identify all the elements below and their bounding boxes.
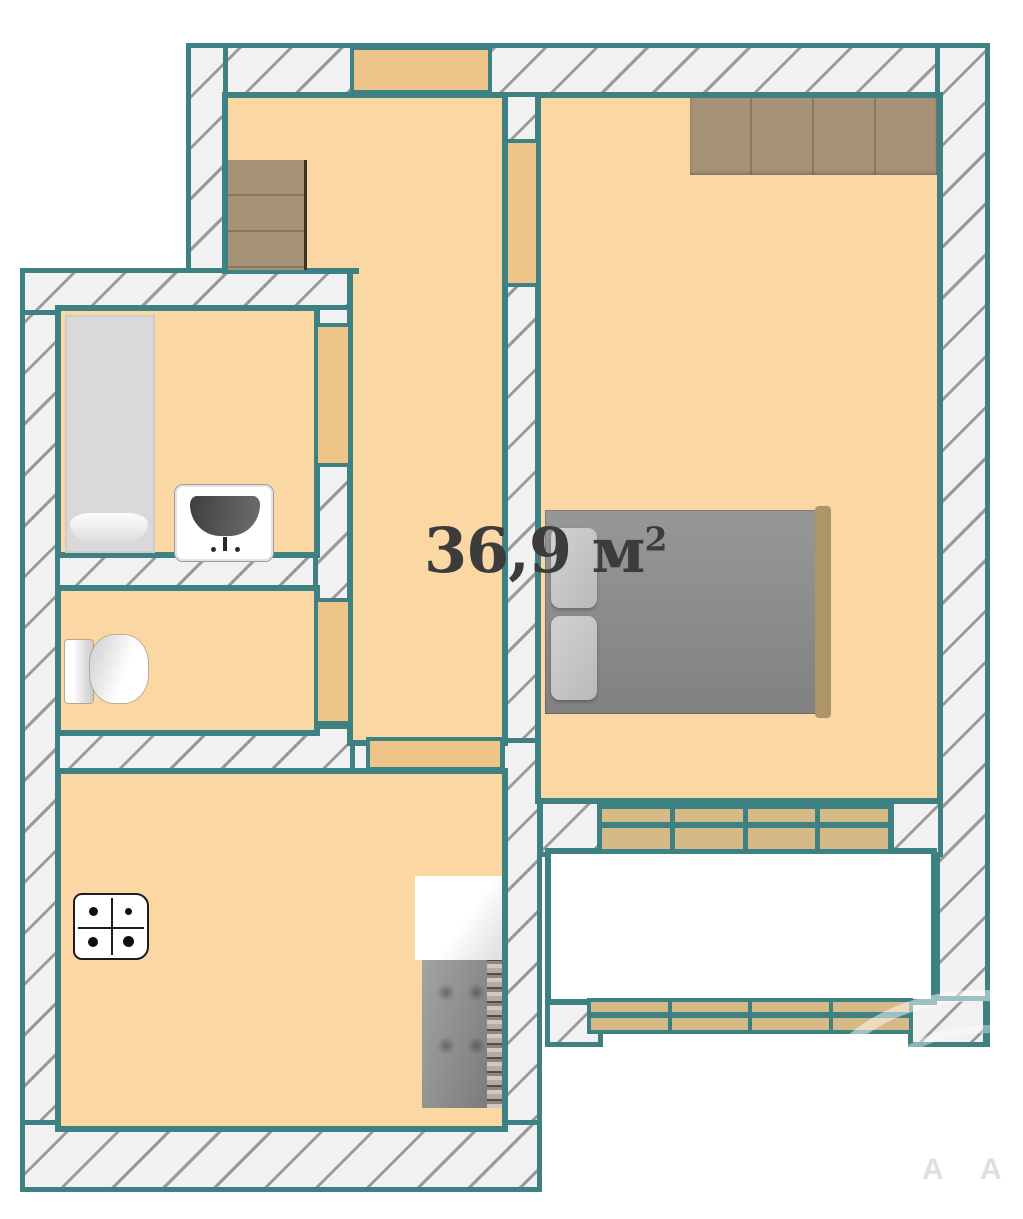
window-pane: [820, 809, 888, 849]
area-unit: м: [592, 514, 645, 587]
stove-burner: [88, 937, 98, 947]
sink-bowl: [190, 496, 260, 536]
exterior-wall-right: [935, 43, 990, 1047]
watermark-letter: A: [980, 1153, 1002, 1187]
window-pane: [591, 1002, 668, 1030]
room-corridor-floor: [353, 98, 502, 740]
window-pane: [752, 1002, 829, 1030]
window-pane: [833, 1002, 910, 1030]
entrance-door-opening: [350, 46, 492, 94]
stove-burner: [89, 907, 98, 916]
bathtub-curve: [70, 513, 148, 543]
area-value: 36,9: [424, 514, 571, 587]
room-balcony: [545, 848, 937, 1005]
area-superscript: 2: [644, 519, 667, 558]
exterior-wall-left-lower: [20, 268, 60, 1192]
bathroom-door-opening: [314, 323, 352, 467]
stove-burner: [123, 936, 134, 947]
exterior-wall-top: [186, 43, 990, 97]
watermark-letter: A: [922, 1153, 944, 1187]
window-pane: [602, 809, 670, 849]
bedroom-wardrobe: [690, 98, 937, 175]
refrigerator: [422, 960, 502, 1108]
bathtub: [65, 315, 155, 553]
balcony-window: [587, 998, 913, 1034]
refrigerator-edge-texture: [487, 960, 502, 1108]
hall-closet: [228, 160, 307, 270]
bedroom-window: [597, 804, 893, 854]
toilet-bowl: [90, 635, 148, 703]
bedroom-door-opening: [504, 139, 540, 287]
stove: [73, 893, 149, 960]
sink-faucet: [223, 537, 227, 551]
kitchen-counter: [415, 876, 502, 960]
window-pane: [672, 1002, 749, 1030]
window-pane: [748, 809, 816, 849]
area-label: 36,9 м2: [424, 514, 667, 587]
bathroom-sink: [175, 485, 273, 561]
bed-pillow: [551, 616, 597, 700]
stove-burner: [125, 908, 132, 915]
floor-plan: 36,9 м2 A A: [0, 0, 1023, 1219]
toilet-door-opening: [314, 598, 352, 725]
window-pane: [675, 809, 743, 849]
kitchen-door-opening: [366, 737, 504, 771]
sink-tap-dot: [235, 547, 240, 552]
sink-tap-dot: [211, 547, 216, 552]
bed-footboard: [815, 506, 831, 718]
toilet-tank: [65, 640, 93, 703]
watermark-circle-icon: [860, 1025, 1023, 1190]
